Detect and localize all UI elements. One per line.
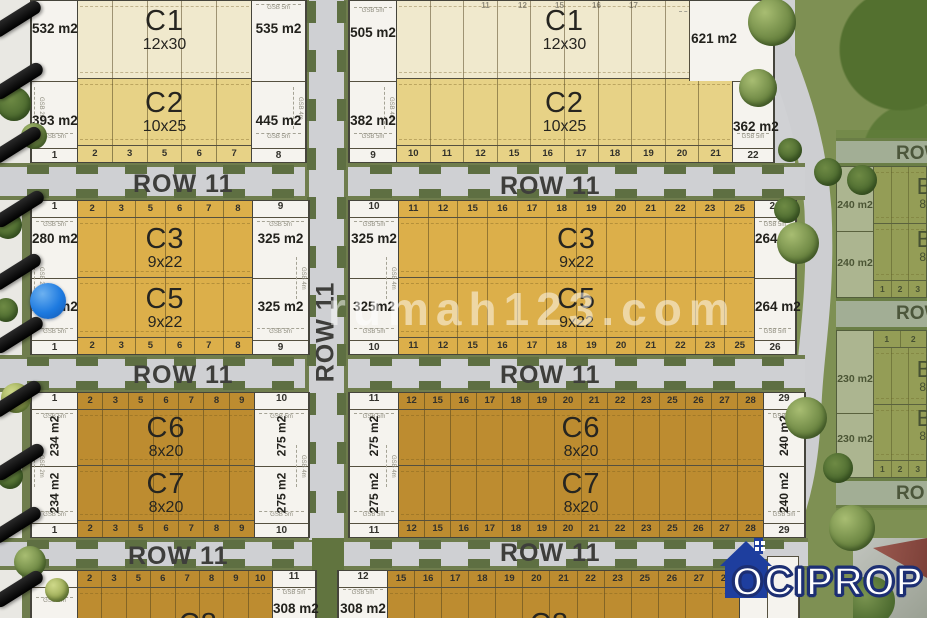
lot-number: 21 bbox=[698, 146, 732, 162]
lot-number: 8 bbox=[199, 571, 223, 587]
lot-number-faint: 15 bbox=[541, 1, 578, 11]
lot-number: 1 bbox=[32, 342, 77, 353]
lot-number: 10 bbox=[350, 342, 398, 353]
block-size: 10x25 bbox=[543, 119, 587, 135]
lot-number: 10 bbox=[397, 146, 430, 162]
lot-line: 6 bbox=[181, 79, 216, 145]
lot-line: 18 bbox=[502, 410, 528, 465]
lot-number: 2 bbox=[78, 393, 102, 409]
area-label: 234 m2 bbox=[48, 471, 62, 516]
row-label-right: ROW bbox=[896, 303, 927, 325]
lot-divider bbox=[253, 340, 308, 341]
street-row11-2 bbox=[0, 355, 805, 392]
lot-line: 8 bbox=[203, 466, 228, 521]
b-row: 123 B 8x bbox=[874, 223, 926, 280]
lot-number: 22 bbox=[665, 338, 695, 354]
lot-number: 5 bbox=[126, 571, 150, 587]
lot-line: 2 bbox=[891, 348, 909, 404]
lot-number: 20 bbox=[554, 393, 580, 409]
lot-number: 19 bbox=[528, 393, 554, 409]
lot-number: 28 bbox=[737, 393, 763, 409]
lot-line: 25 bbox=[659, 466, 685, 521]
lot-number: 17 bbox=[517, 201, 547, 217]
lot-line: 2 bbox=[78, 410, 102, 465]
lot-divider bbox=[255, 523, 308, 524]
lot-325: 9 325 m2 325 m2 9 GSB 5m GSB 5m GSB 4m bbox=[252, 201, 309, 354]
b-row: 123 B 8x bbox=[874, 167, 926, 223]
block-name: C8 bbox=[530, 610, 569, 618]
lot-divider bbox=[350, 148, 396, 149]
area-label: 275 m2 bbox=[367, 469, 381, 517]
block-label-c2: C2 10x25 bbox=[543, 89, 587, 135]
c2-row: 23567 C2 10x25 bbox=[78, 78, 251, 145]
lot-divider bbox=[252, 81, 305, 82]
lot-line: 2 bbox=[891, 405, 909, 461]
lot-line: 20 bbox=[606, 218, 636, 277]
lot-line: 27 bbox=[711, 466, 737, 521]
lot-number: 23 bbox=[633, 521, 659, 537]
lot-line: 16 bbox=[450, 466, 476, 521]
gsb-label: GSB 5m bbox=[36, 328, 73, 336]
block-size: 8x bbox=[917, 430, 927, 442]
lot-line: 26 bbox=[685, 466, 711, 521]
lot-number: 22 bbox=[733, 150, 773, 161]
gsb-label: GSB 4m bbox=[386, 445, 396, 487]
lot-line: 20 bbox=[665, 79, 699, 145]
lots-colored: 23567 C1 12x30 23567 C2 10x25 23567 bbox=[78, 1, 251, 162]
area-label: 535 m2 bbox=[252, 21, 305, 36]
lot-535: 535 m2 445 m2 8 GSB 5m GSB 5m GSB 4m bbox=[251, 1, 306, 162]
lot-number: 19 bbox=[631, 146, 665, 162]
lot-line: 3 bbox=[102, 466, 127, 521]
block-name: C6 bbox=[561, 414, 600, 443]
lot-number: 10 bbox=[248, 571, 272, 587]
lot-number: 20 bbox=[665, 146, 699, 162]
lot-number: 2 bbox=[78, 146, 112, 162]
gsb-label: GSB 5m bbox=[257, 221, 304, 229]
lot-line: 11 bbox=[430, 1, 464, 78]
block-size: 8x20 bbox=[561, 500, 600, 516]
lot-line: 2 bbox=[891, 167, 909, 223]
lot-line: 22 bbox=[577, 588, 604, 618]
lot-number: 23 bbox=[633, 393, 659, 409]
area-label: 275 m2 bbox=[275, 467, 289, 520]
tree-icon bbox=[777, 222, 819, 264]
lot-number: 21 bbox=[549, 571, 576, 587]
lot-divider bbox=[32, 217, 77, 218]
lot-number: 25 bbox=[659, 521, 685, 537]
watermark: rumah123.com bbox=[328, 282, 737, 336]
lot-number: 21 bbox=[581, 521, 607, 537]
gsb-label: GSB 5m bbox=[759, 328, 791, 336]
lot-number: 26 bbox=[658, 571, 685, 587]
gsb-label: GSB 5m bbox=[354, 7, 392, 15]
c3-row: 235678 C3 9x22 bbox=[78, 218, 252, 277]
area-label: 234 m2 bbox=[48, 414, 62, 459]
block-label-c3: C3 9x22 bbox=[145, 225, 184, 271]
lot-number: 16 bbox=[414, 571, 441, 587]
block-name: C6 bbox=[146, 414, 185, 443]
lot-number: 1 bbox=[874, 461, 891, 477]
block-b-bottom: 230 m2 230 m2 12 123 B 8x 123 B 8x 123 bbox=[836, 330, 927, 478]
lot-number: 23 bbox=[695, 201, 725, 217]
row11-label: ROW 11 bbox=[133, 170, 233, 199]
lot-number: 22 bbox=[607, 393, 633, 409]
lot-number: 23 bbox=[604, 571, 631, 587]
lot-divider bbox=[350, 340, 398, 341]
block-name: C5 bbox=[145, 285, 184, 314]
block-label-c1: C1 12x30 bbox=[143, 7, 187, 53]
lot-number: 6 bbox=[165, 338, 194, 354]
tree-icon bbox=[774, 197, 800, 223]
lot-number: 6 bbox=[181, 146, 216, 162]
area-label: 308 m2 bbox=[273, 601, 315, 616]
block-label-c8: C8 bbox=[530, 610, 569, 618]
lot-line: 3 bbox=[112, 79, 147, 145]
block-size: 9x22 bbox=[145, 255, 184, 271]
area-label: 445 m2 bbox=[252, 113, 305, 128]
gsb-label: GSB 5m bbox=[256, 4, 301, 12]
lot-number: 5 bbox=[135, 338, 164, 354]
lot-number: 26 bbox=[685, 521, 711, 537]
block-label-c8: C8 bbox=[179, 610, 218, 618]
lot-line: 19 bbox=[631, 79, 665, 145]
street-row11-3 bbox=[0, 538, 808, 570]
lots-colored: 15161718192021222325262728 1516171819202… bbox=[388, 571, 739, 618]
lot-number: 25 bbox=[659, 393, 685, 409]
street-bumps bbox=[0, 165, 805, 174]
street-bumps bbox=[0, 189, 805, 198]
block-name: C2 bbox=[143, 89, 187, 118]
gsb-label: GSB 4m bbox=[296, 257, 306, 299]
lot-number: 10 bbox=[255, 525, 308, 536]
lot-line: 2 bbox=[78, 466, 102, 521]
lot-line: 3 bbox=[106, 278, 135, 337]
lot-number: 8 bbox=[223, 338, 252, 354]
lot-number: 17 bbox=[441, 571, 468, 587]
lot-divider bbox=[755, 340, 795, 341]
tree-icon bbox=[814, 158, 842, 186]
lot-number: 8 bbox=[203, 521, 228, 537]
lot-number: 22 bbox=[607, 521, 633, 537]
block-label-c5: C5 9x22 bbox=[145, 285, 184, 331]
lot-number: 11 bbox=[273, 571, 315, 582]
block-name: C3 bbox=[145, 225, 184, 254]
lot-line: 2 bbox=[78, 1, 112, 78]
lot-line: 2 bbox=[78, 588, 101, 618]
lot-line: 3 bbox=[112, 1, 147, 78]
lot-number: 21 bbox=[635, 201, 665, 217]
lot-divider bbox=[755, 278, 795, 279]
street-row-right-low: RO bbox=[836, 478, 927, 508]
lot-line: 12 bbox=[428, 218, 458, 277]
gsb-label: GSB 5m bbox=[343, 589, 383, 597]
tree-icon bbox=[45, 578, 69, 602]
lot-number: 2 bbox=[78, 521, 102, 537]
lot-number: 5 bbox=[128, 521, 153, 537]
lot-number: 11 bbox=[399, 201, 428, 217]
lot-number: 25 bbox=[724, 338, 754, 354]
lot-number: 29 bbox=[764, 525, 804, 536]
lot-number: 5 bbox=[135, 201, 164, 217]
lot-line: 7 bbox=[194, 218, 223, 277]
lot-number: 1 bbox=[32, 525, 77, 536]
lot-number: 3 bbox=[106, 201, 135, 217]
lot-line: 7 bbox=[216, 79, 251, 145]
lot-number: 16 bbox=[530, 146, 564, 162]
lot-number: 17 bbox=[476, 393, 502, 409]
lot-505: 505 m2 382 m2 9 GSB 5m GSB 5m GSB 4m bbox=[349, 1, 397, 162]
lot-number-faint: 11 bbox=[467, 1, 504, 11]
street-bumps bbox=[0, 357, 805, 366]
area-label: 230 m2 bbox=[837, 373, 873, 385]
lot-line: 12 bbox=[399, 410, 424, 465]
block-size: 8x20 bbox=[561, 444, 600, 460]
lot-line: 27 bbox=[711, 410, 737, 465]
c6-row: 2356789 C6 8x20 bbox=[78, 410, 254, 465]
lot-divider bbox=[764, 466, 804, 467]
lot-number: 19 bbox=[495, 571, 522, 587]
block-name: B bbox=[917, 175, 927, 198]
lot-308-mid: 12 GSB 5m 308 m2 bbox=[338, 571, 388, 618]
lot-number: 20 bbox=[606, 338, 636, 354]
street-bumps bbox=[337, 0, 346, 540]
row11-label: ROW 11 bbox=[133, 361, 233, 390]
lots-colored: 235678910 235678910 C8 bbox=[78, 571, 272, 618]
lot-line: 19 bbox=[528, 410, 554, 465]
lot-number: 27 bbox=[711, 521, 737, 537]
c8-row: 235678910 C8 bbox=[78, 588, 272, 618]
street-bumps bbox=[0, 381, 805, 390]
lot-line: 2 bbox=[891, 224, 909, 280]
lot-number: 2 bbox=[78, 338, 106, 354]
area-label: 325 m2 bbox=[253, 231, 308, 246]
lot-line: 19 bbox=[528, 466, 554, 521]
lot-number: 3 bbox=[102, 393, 127, 409]
lot-divider bbox=[764, 523, 804, 524]
area-label: 275 m2 bbox=[275, 410, 289, 463]
block-label-c3: C3 9x22 bbox=[557, 225, 596, 271]
area-label: 382 m2 bbox=[350, 113, 396, 128]
lot-divider bbox=[837, 413, 873, 414]
block-size: 8x bbox=[917, 198, 927, 210]
block-label-c1: C1 12x30 bbox=[543, 7, 587, 53]
block-c8-left: GSB 5m 235678910 235678910 C8 11 GSB 5m … bbox=[30, 570, 317, 618]
lot-number: 15 bbox=[457, 201, 487, 217]
block-name: C1 bbox=[543, 7, 587, 36]
lot-line: 23 bbox=[633, 410, 659, 465]
lot-number: 2 bbox=[78, 201, 106, 217]
block-label-b: B 8x bbox=[917, 358, 927, 393]
lot-275-mid: 11 275 m2 275 m2 11 GSB 5m GSB 5m GSB 4m bbox=[349, 393, 399, 537]
lot-number: 11 bbox=[399, 338, 428, 354]
block-label-c6: C6 8x20 bbox=[561, 414, 600, 460]
block-size: 9x22 bbox=[557, 255, 596, 271]
lot-divider bbox=[733, 148, 773, 149]
lot-number: 6 bbox=[153, 393, 178, 409]
lot-number: 15 bbox=[457, 338, 487, 354]
lot-line: 1 bbox=[874, 348, 891, 404]
lot-number: 26 bbox=[685, 393, 711, 409]
area-label: 240 m2 bbox=[777, 473, 791, 513]
lot-number: 1 bbox=[874, 281, 891, 297]
lot-line: 23 bbox=[604, 588, 631, 618]
lot-line: 19 bbox=[495, 588, 522, 618]
lot-line: 9 bbox=[229, 466, 254, 521]
lot-divider bbox=[350, 81, 396, 82]
row11-label: ROW 11 bbox=[500, 172, 600, 201]
tree-icon bbox=[739, 69, 777, 107]
block-name: C7 bbox=[146, 470, 185, 499]
block-size: 10x25 bbox=[143, 119, 187, 135]
lots-colored: 10111215161718192021 C1 12x30 1011121516… bbox=[397, 1, 732, 162]
block-name: B bbox=[917, 228, 927, 251]
lot-line: 17 bbox=[517, 218, 547, 277]
lot-line: 26 bbox=[658, 588, 685, 618]
block-label-b: B 8x bbox=[917, 228, 927, 263]
lot-number: 25 bbox=[724, 201, 754, 217]
row11-label: ROW 11 bbox=[128, 542, 228, 571]
lot-number: 18 bbox=[502, 521, 528, 537]
lot-number: 3 bbox=[106, 338, 135, 354]
lot-number: 11 bbox=[350, 525, 398, 536]
lot-number: 22 bbox=[577, 571, 604, 587]
lot-number: 22 bbox=[665, 201, 695, 217]
c3-row: 111215161718192021222325 C3 9x22 bbox=[399, 218, 754, 277]
lot-number: 12 bbox=[399, 521, 424, 537]
lot-line: 18 bbox=[598, 79, 632, 145]
lot-line: 17 bbox=[441, 588, 468, 618]
lot-number: 2 bbox=[891, 281, 909, 297]
lot-number: 3 bbox=[112, 146, 147, 162]
row11-label: ROW 11 bbox=[500, 361, 600, 390]
lot-line: 6 bbox=[150, 588, 174, 618]
lot-line: 8 bbox=[223, 218, 252, 277]
lot-number: 8 bbox=[252, 150, 305, 161]
c6-row: 1215161718192021222325262728 C6 8x20 bbox=[399, 410, 763, 465]
lot-number: 9 bbox=[229, 521, 254, 537]
b-row: 123 B 8x bbox=[874, 404, 926, 461]
site-plan-photo: ROW 11 ROW 11 ROW 11 ROW 11 ROW 11 ROW 1… bbox=[0, 0, 927, 618]
block-name: B bbox=[917, 407, 927, 430]
lot-number: 3 bbox=[102, 521, 127, 537]
lot-number-faint: 16 bbox=[578, 1, 615, 11]
lot-number: 2 bbox=[891, 461, 909, 477]
lot-number: 27 bbox=[711, 393, 737, 409]
lot-line: 10 bbox=[397, 1, 430, 78]
lot-line: 26 bbox=[685, 410, 711, 465]
lot-number: 17 bbox=[564, 146, 598, 162]
lot-line: 8 bbox=[223, 278, 252, 337]
lot-line: 12 bbox=[399, 466, 424, 521]
lot-divider bbox=[32, 409, 77, 410]
block-label-b: B 8x bbox=[917, 407, 927, 442]
lot-line: 11 bbox=[430, 79, 464, 145]
lot-308-left: 11 GSB 5m 308 m2 bbox=[272, 571, 316, 618]
lot-line: 18 bbox=[598, 1, 632, 78]
lot-number: 12 bbox=[463, 146, 497, 162]
lot-number: 3 bbox=[101, 571, 125, 587]
block-name: B bbox=[917, 358, 927, 381]
lot-number: 7 bbox=[175, 571, 199, 587]
lot-line: 9 bbox=[229, 410, 254, 465]
lot-number: 12 bbox=[428, 338, 458, 354]
c1-row: 23567 C1 12x30 bbox=[78, 1, 251, 78]
lot-number: 19 bbox=[576, 338, 606, 354]
lot-number: 11 bbox=[430, 146, 464, 162]
lot-number: 15 bbox=[497, 146, 531, 162]
logo-text: OCIPROP bbox=[732, 560, 923, 605]
lot-number: 7 bbox=[178, 521, 203, 537]
lot-divider bbox=[350, 217, 398, 218]
lot-number: 9 bbox=[350, 150, 396, 161]
lot-divider bbox=[350, 523, 398, 524]
area-label: 325 m2 bbox=[253, 299, 308, 314]
lot-number: 12 bbox=[428, 201, 458, 217]
lot-line: 3 bbox=[106, 218, 135, 277]
lots-colored: 235678 235678 C3 9x22 235678 C5 9x22 235… bbox=[78, 201, 252, 354]
lot-number: 11 bbox=[350, 393, 398, 404]
street-bumps bbox=[0, 559, 808, 568]
lot-divider bbox=[32, 523, 77, 524]
gsb-label: GSB 4m bbox=[296, 445, 306, 487]
lot-number: 21 bbox=[635, 338, 665, 354]
lot-number: 28 bbox=[737, 521, 763, 537]
lot-number: 9 bbox=[223, 571, 247, 587]
lot-number: 9 bbox=[253, 201, 308, 212]
lot-line: 17 bbox=[476, 410, 502, 465]
lot-line: 25 bbox=[724, 218, 754, 277]
c2-row: 10111215161718192021 C2 10x25 bbox=[397, 78, 732, 145]
c5-row: 235678 C5 9x22 bbox=[78, 277, 252, 337]
lot-line: 9 bbox=[223, 588, 247, 618]
block-size: 12x30 bbox=[543, 37, 587, 53]
area-label: 532 m2 bbox=[32, 21, 77, 36]
lot-number: 18 bbox=[598, 146, 632, 162]
lot-number: 6 bbox=[150, 571, 174, 587]
gsb-label: GSB 5m bbox=[256, 133, 301, 141]
ociprop-logo: OCIPROP bbox=[718, 536, 927, 616]
lot-number: 25 bbox=[631, 571, 658, 587]
lot-number: 7 bbox=[178, 393, 203, 409]
lot-line: 21 bbox=[635, 218, 665, 277]
lot-line: 16 bbox=[450, 410, 476, 465]
area-label: 275 m2 bbox=[367, 412, 381, 460]
lots-colored: 2356789 2356789 C6 8x20 2356789 C7 8x20 … bbox=[78, 393, 254, 537]
lot-line: 10 bbox=[248, 588, 272, 618]
lot-line: 10 bbox=[397, 79, 430, 145]
lot-line: 18 bbox=[468, 588, 495, 618]
block-size: 8x20 bbox=[146, 500, 185, 516]
tree-icon bbox=[847, 165, 877, 195]
lot-line: 7 bbox=[194, 278, 223, 337]
row-label-right: ROW bbox=[896, 143, 927, 165]
gsb-label: GSB 5m bbox=[354, 133, 392, 141]
lot-number: 21 bbox=[581, 393, 607, 409]
lot-number: 5 bbox=[147, 146, 182, 162]
lot-number: 7 bbox=[216, 146, 251, 162]
street-row-right-top: ROW bbox=[836, 138, 927, 166]
lot-number: 7 bbox=[194, 201, 223, 217]
lot-number: 3 bbox=[908, 461, 926, 477]
area-label: 362 m2 bbox=[733, 119, 773, 134]
lot-line: 21 bbox=[698, 79, 732, 145]
lot-line: 17 bbox=[476, 466, 502, 521]
block-label-c7: C7 8x20 bbox=[561, 470, 600, 516]
lot-number: 8 bbox=[223, 201, 252, 217]
lot-number: 9 bbox=[229, 393, 254, 409]
lot-number: 18 bbox=[546, 201, 576, 217]
